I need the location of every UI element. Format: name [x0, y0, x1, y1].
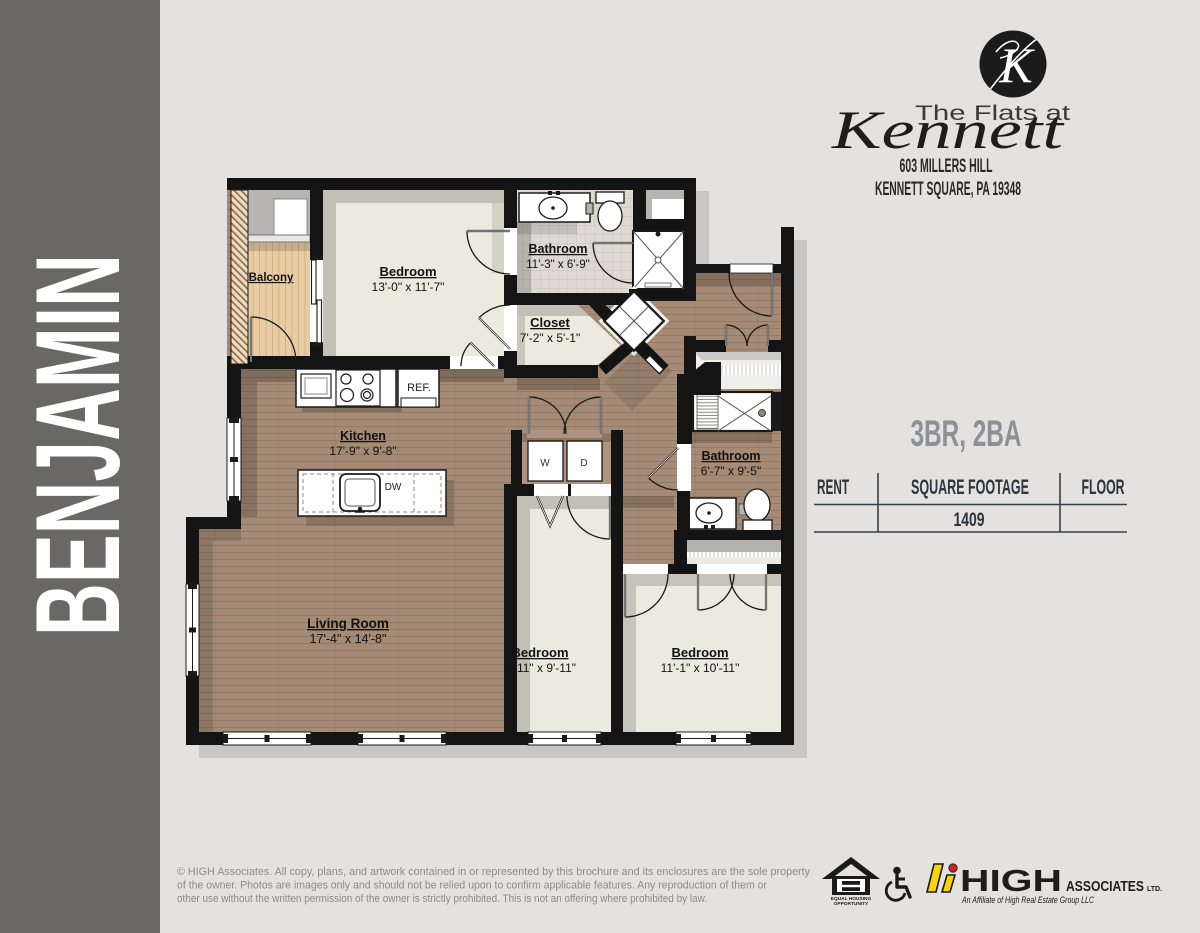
svg-text:Closet: Closet: [530, 315, 570, 330]
svg-text:LTD.: LTD.: [1147, 886, 1162, 893]
svg-text:An Affiliate of High Real Esta: An Affiliate of High Real Estate Group L…: [961, 895, 1094, 905]
svg-text:1409: 1409: [954, 510, 985, 531]
svg-text:9'-11" x 9'-11": 9'-11" x 9'-11": [504, 661, 576, 675]
svg-text:6'-7" x 9'-5": 6'-7" x 9'-5": [701, 464, 761, 478]
svg-text:D: D: [580, 458, 587, 469]
svg-text:Bedroom: Bedroom: [671, 645, 728, 660]
svg-text:© HIGH Associates. All copy, p: © HIGH Associates. All copy, plans, and …: [177, 866, 810, 878]
svg-text:FLOOR: FLOOR: [1082, 476, 1125, 499]
svg-text:other use without the written: other use without the written permission…: [177, 893, 707, 905]
svg-text:Bedroom: Bedroom: [511, 645, 568, 660]
svg-text:ASSOCIATES: ASSOCIATES: [1066, 879, 1144, 895]
svg-text:Kennett: Kennett: [831, 100, 1066, 160]
svg-text:7'-2" x 5'-1": 7'-2" x 5'-1": [520, 331, 580, 345]
svg-text:3BR, 2BA: 3BR, 2BA: [911, 413, 1022, 454]
svg-text:DW: DW: [385, 482, 402, 493]
svg-text:Living Room: Living Room: [307, 616, 389, 631]
svg-text:HIGH: HIGH: [960, 863, 1062, 898]
svg-text:SQUARE FOOTAGE: SQUARE FOOTAGE: [911, 476, 1029, 499]
svg-text:11'-3" x 6'-9": 11'-3" x 6'-9": [526, 259, 589, 271]
svg-text:17'-9" x 9'-8": 17'-9" x 9'-8": [329, 444, 396, 458]
svg-text:BENJAMIN: BENJAMIN: [11, 254, 145, 636]
svg-text:603 MILLERS HILL: 603 MILLERS HILL: [900, 156, 993, 177]
svg-text:OPPORTUNITY: OPPORTUNITY: [834, 901, 869, 907]
svg-text:REF.: REF.: [407, 382, 431, 394]
svg-text:RENT: RENT: [817, 476, 849, 499]
svg-text:17'-4" x 14'-8": 17'-4" x 14'-8": [310, 632, 387, 646]
svg-text:Balcony: Balcony: [249, 272, 294, 284]
svg-text:W: W: [540, 458, 550, 469]
svg-text:Bathroom: Bathroom: [701, 449, 760, 463]
svg-text:Bathroom: Bathroom: [528, 242, 587, 256]
svg-text:11'-1" x 10'-11": 11'-1" x 10'-11": [661, 661, 740, 675]
svg-text:of the owner. Photos are image: of the owner. Photos are images only and…: [177, 880, 767, 892]
svg-text:13'-0" x 11'-7": 13'-0" x 11'-7": [372, 280, 445, 294]
svg-text:KENNETT SQUARE, PA 19348: KENNETT SQUARE, PA 19348: [875, 179, 1021, 200]
svg-text:Bedroom: Bedroom: [379, 264, 436, 279]
svg-text:Kitchen: Kitchen: [340, 429, 386, 443]
